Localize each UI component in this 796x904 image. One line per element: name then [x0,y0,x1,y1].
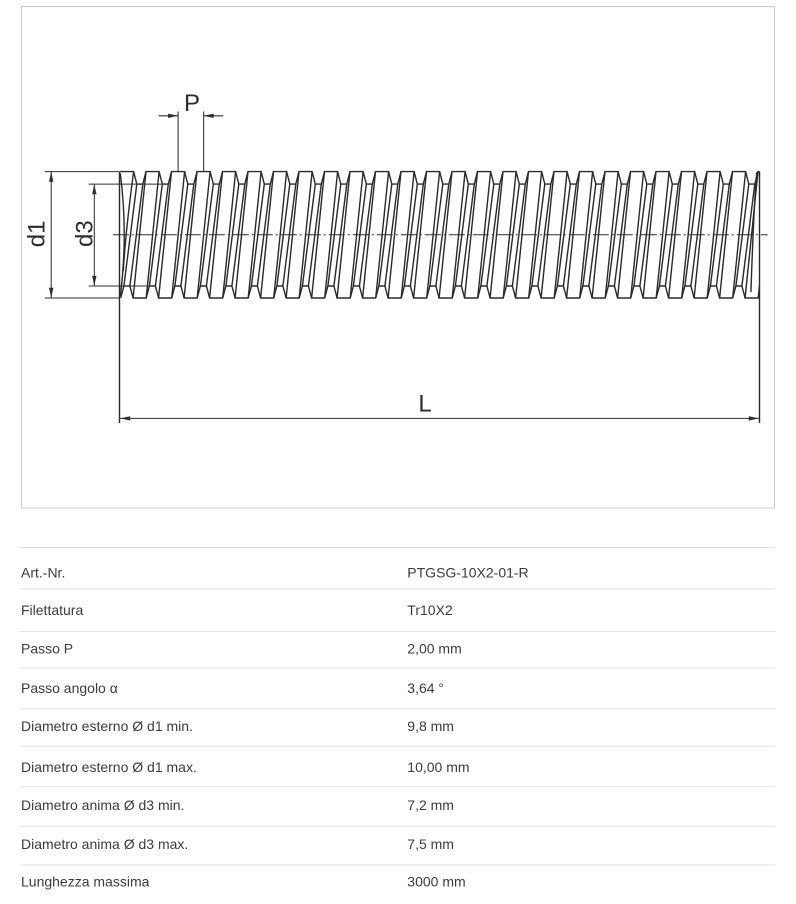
svg-text:10,00 mm: 10,00 mm [407,759,469,775]
svg-text:Passo angolo α: Passo angolo α [21,680,118,696]
svg-text:Lunghezza massima: Lunghezza massima [21,874,150,890]
svg-text:P: P [184,90,200,117]
svg-text:L: L [418,391,431,418]
svg-text:Diametro anima Ø d3 min.: Diametro anima Ø d3 min. [21,797,184,813]
svg-text:9,8 mm: 9,8 mm [407,718,454,734]
svg-text:d1: d1 [24,221,51,248]
svg-text:3000 mm: 3000 mm [407,874,465,890]
svg-text:Diametro esterno Ø d1 max.: Diametro esterno Ø d1 max. [21,759,197,775]
svg-text:Diametro esterno Ø d1 min.: Diametro esterno Ø d1 min. [21,718,193,734]
svg-text:2,00 mm: 2,00 mm [407,640,461,656]
svg-text:Tr10X2: Tr10X2 [407,602,453,618]
svg-text:Diametro anima Ø d3 max.: Diametro anima Ø d3 max. [21,836,188,852]
svg-text:7,5 mm: 7,5 mm [407,836,454,852]
svg-text:Art.-Nr.: Art.-Nr. [21,565,65,581]
svg-text:Passo P: Passo P [21,640,73,656]
svg-text:Filettatura: Filettatura [21,602,83,618]
svg-text:PTGSG-10X2-01-R: PTGSG-10X2-01-R [407,565,528,581]
svg-text:d3: d3 [71,220,98,247]
svg-text:3,64 °: 3,64 ° [407,680,444,696]
svg-text:7,2 mm: 7,2 mm [407,797,454,813]
